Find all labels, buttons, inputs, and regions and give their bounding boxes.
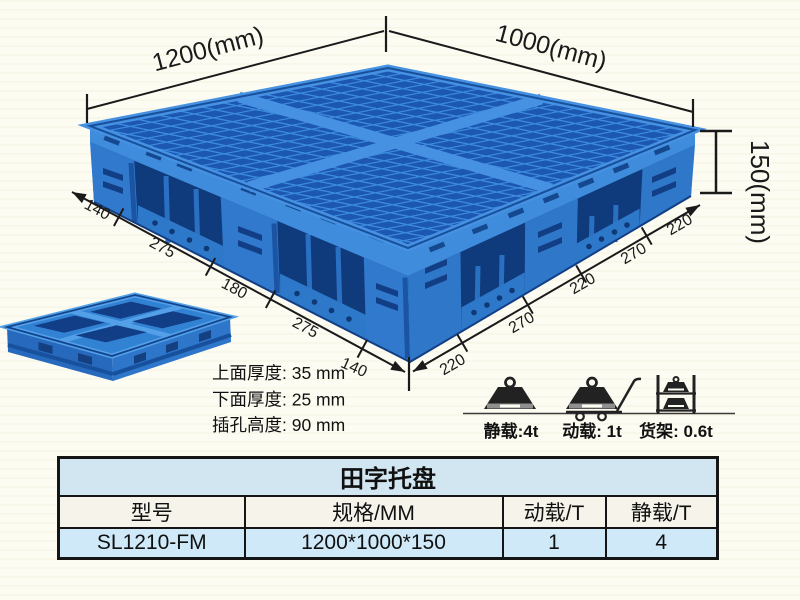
spec-fork-hole-height: 插孔高度: 90 mm bbox=[212, 415, 345, 435]
width-dimension-label: 1200(mm) bbox=[149, 21, 266, 77]
depth-dimension-label: 1000(mm) bbox=[492, 19, 609, 76]
height-dimension: 150(mm) bbox=[700, 131, 775, 244]
spec-table: 田字托盘 型号 规格/MM 动载/T 静载/T SL1210-FM 1200*1… bbox=[57, 456, 719, 560]
table-row: SL1210-FM 1200*1000*150 1 4 bbox=[59, 528, 718, 558]
static-load-weight-icon bbox=[484, 378, 536, 409]
small-pallet-illustration bbox=[7, 295, 231, 381]
table-title: 田字托盘 bbox=[59, 458, 718, 496]
load-ratings: 静载:4t 动载: 1t 货架: 0.6t bbox=[463, 375, 735, 441]
rack-load-shelf-icon bbox=[656, 375, 696, 414]
spec-bottom-thickness: 下面厚度: 25 mm bbox=[212, 390, 345, 410]
table-header-model: 型号 bbox=[59, 496, 245, 529]
rack-load-label: 货架: 0.6t bbox=[639, 421, 713, 441]
right-chain-label: 270 bbox=[618, 240, 650, 268]
dynamic-load-label: 动载: 1t bbox=[562, 421, 622, 441]
table-header-static-load: 静载/T bbox=[606, 496, 718, 529]
static-load-label: 静载:4t bbox=[484, 421, 539, 441]
right-chain-label: 220 bbox=[567, 270, 599, 298]
cell-dynamic-load: 1 bbox=[503, 528, 606, 558]
cell-static-load: 4 bbox=[606, 528, 718, 558]
pallet-spec-sheet: 1200(mm) 1000(mm) 150(mm) 140 275 180 27… bbox=[0, 0, 800, 600]
spec-top-thickness: 上面厚度: 35 mm bbox=[212, 363, 345, 383]
cell-spec: 1200*1000*150 bbox=[245, 528, 503, 558]
left-chain-label: 275 bbox=[289, 314, 321, 342]
pallet-diagram: 1200(mm) 1000(mm) 150(mm) 140 275 180 27… bbox=[0, 0, 800, 455]
cell-model: SL1210-FM bbox=[59, 528, 245, 558]
height-dimension-label: 150(mm) bbox=[745, 140, 775, 244]
thickness-specs: 上面厚度: 35 mm 下面厚度: 25 mm 插孔高度: 90 mm bbox=[212, 363, 345, 435]
table-header-dynamic-load: 动载/T bbox=[503, 496, 606, 529]
table-header-spec: 规格/MM bbox=[245, 496, 503, 529]
